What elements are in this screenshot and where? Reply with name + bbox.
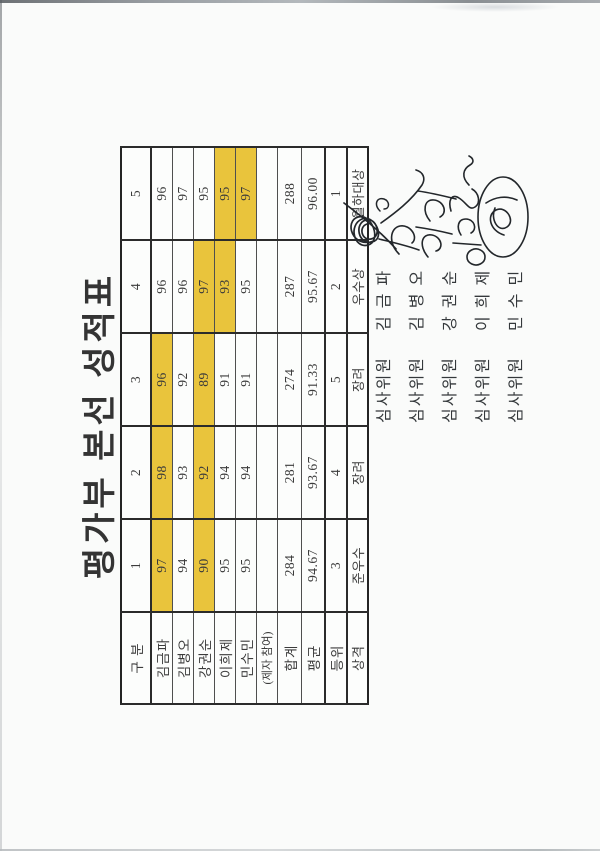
table-cell: 5: [325, 333, 347, 426]
signature-row-5: 심사위원 민 수 민: [502, 123, 524, 423]
judge-role-label: 심사위원: [436, 356, 460, 423]
table-cell: 91: [236, 333, 257, 426]
signature-scribble-min-su-min: [472, 159, 534, 271]
table-cell: (제자 참여): [257, 612, 278, 704]
table-cell: 김금파: [151, 612, 173, 704]
table-cell: 96: [151, 333, 173, 426]
table-cell: 구 분: [121, 612, 151, 704]
rotated-document-content: 평가부 본선 성적표 구 분12345김금파9798969696김병오94939…: [0, 0, 600, 851]
judge-row: 김병오9493929697: [173, 147, 194, 704]
judge-role-label: 심사위원: [502, 356, 526, 423]
table-cell: 이희제: [215, 612, 236, 704]
table-cell: 4: [325, 426, 347, 519]
table-cell: 4: [121, 240, 151, 333]
table-cell: 93: [173, 426, 194, 519]
table-cell: 5: [121, 147, 151, 240]
table-cell: 95: [215, 147, 236, 240]
table-cell: [257, 519, 278, 612]
table-cell: 등위: [325, 612, 347, 704]
table-cell: 287: [278, 240, 302, 333]
judge-name: 김 병 오: [403, 269, 427, 331]
score-table: 구 분12345김금파9798969696김병오9493929697강권순909…: [120, 146, 369, 705]
table-cell: 김병오: [173, 612, 194, 704]
table-cell: 95: [236, 240, 257, 333]
table-cell: 1: [121, 519, 151, 612]
table-cell: 97: [194, 240, 215, 333]
judge-row: 민수민9594919597: [236, 147, 257, 704]
table-cell: 93: [215, 240, 236, 333]
judge-role-label: 심사위원: [370, 356, 394, 423]
judge-name: 이 희 제: [469, 269, 493, 331]
table-cell: 96: [151, 147, 173, 240]
page-title: 평가부 본선 성적표: [72, 0, 121, 851]
score-table-body: 구 분12345김금파9798969696김병오9493929697강권순909…: [121, 147, 368, 704]
judge-name: 김 금 파: [370, 269, 394, 331]
judge-role-label: 심사위원: [469, 356, 493, 423]
table-cell: 94: [236, 426, 257, 519]
table-cell: 장려: [347, 426, 368, 519]
table-cell: 93.67: [302, 426, 326, 519]
table-cell: 3: [121, 333, 151, 426]
table-cell: 92: [194, 426, 215, 519]
table-cell: 준우수: [347, 519, 368, 612]
table-cell: 94.67: [302, 519, 326, 612]
judge-name: 강 권 순: [436, 269, 460, 331]
table-cell: 96: [173, 240, 194, 333]
table-cell: 민수민: [236, 612, 257, 704]
table-cell: 94: [173, 519, 194, 612]
table-cell: 강권순: [194, 612, 215, 704]
table-cell: 91.33: [302, 333, 326, 426]
table-cell: 합계: [278, 612, 302, 704]
judge-role-label: 심사위원: [403, 356, 427, 423]
table-cell: 장려: [347, 333, 368, 426]
table-cell: 96.00: [302, 147, 326, 240]
table-cell: 97: [173, 147, 194, 240]
disciple-row: (제자 참여): [257, 147, 278, 704]
scanned-page: { "title": "평가부 본선 성적표", "colors": { "pa…: [0, 0, 600, 851]
table-cell: 3: [325, 519, 347, 612]
table-cell: 288: [278, 147, 302, 240]
table-cell: 95.67: [302, 240, 326, 333]
table-cell: 281: [278, 426, 302, 519]
judge-row: 이희제9594919395: [215, 147, 236, 704]
table-cell: 97: [151, 519, 173, 612]
table-cell: [257, 426, 278, 519]
table-cell: 92: [173, 333, 194, 426]
judge-name: 민 수 민: [502, 269, 526, 331]
table-cell: 95: [194, 147, 215, 240]
table-cell: [257, 240, 278, 333]
table-cell: 274: [278, 333, 302, 426]
table-cell: [257, 147, 278, 240]
table-cell: 91: [215, 333, 236, 426]
table-cell: 2: [121, 426, 151, 519]
table-cell: 평균: [302, 612, 326, 704]
table-cell: [257, 333, 278, 426]
header-row: 구 분12345: [121, 147, 151, 704]
table-cell: 94: [215, 426, 236, 519]
table-cell: 284: [278, 519, 302, 612]
judge-row: 김금파9798969696: [151, 147, 173, 704]
table-cell: 90: [194, 519, 215, 612]
summary-row: 평균94.6793.6791.3395.6796.00: [302, 147, 326, 704]
judge-row: 강권순9092899795: [194, 147, 215, 704]
table-cell: 89: [194, 333, 215, 426]
table-cell: 상격: [347, 612, 368, 704]
table-cell: 96: [151, 240, 173, 333]
table-cell: 95: [215, 519, 236, 612]
table-cell: 95: [236, 519, 257, 612]
table-cell: 97: [236, 147, 257, 240]
summary-row: 합계284281274287288: [278, 147, 302, 704]
table-cell: 98: [151, 426, 173, 519]
